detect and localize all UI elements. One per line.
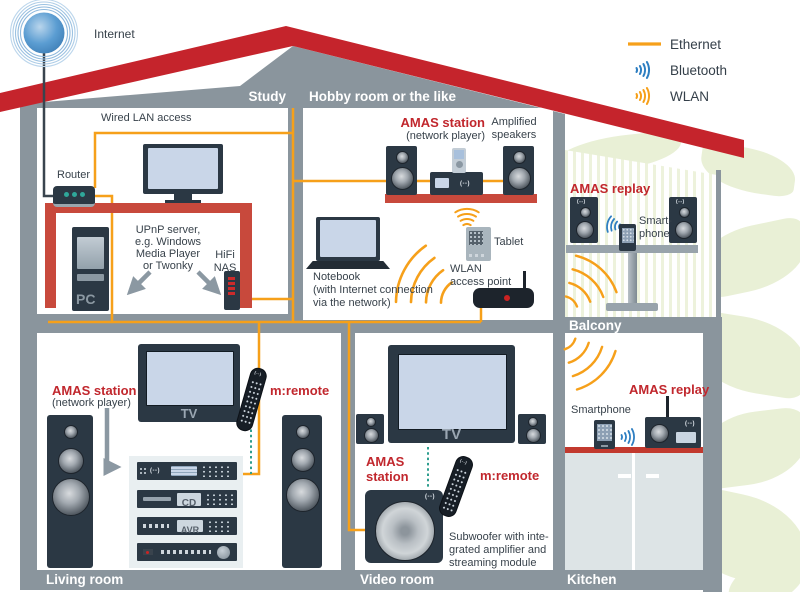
study-desk-leg	[45, 213, 56, 308]
ipod-dock	[452, 148, 466, 173]
upnp-server-label: UPnP server, e.g. Windows Media Player o…	[130, 224, 206, 272]
hifi-nas-device	[224, 271, 240, 310]
hifi-nas-label: HiFi NAS	[206, 249, 244, 275]
balcony-pillar	[716, 170, 721, 317]
kitchen-smartphone	[594, 420, 615, 449]
legend-ethernet-label: Ethernet	[670, 37, 721, 53]
rack-amplifier	[137, 543, 237, 561]
kitchen-right-wall	[703, 331, 722, 592]
hobby-shelf	[385, 194, 537, 203]
living-tv: TV	[138, 344, 240, 422]
kitchen-room	[565, 333, 703, 570]
tv-label: TV	[388, 426, 515, 443]
rack-cd-player: CD	[137, 490, 237, 508]
subwoofer-device: (--)	[365, 490, 443, 563]
pc-tower: PC	[72, 227, 109, 311]
legend-wlan-label: WLAN	[670, 89, 709, 105]
cabinet-divider	[632, 453, 635, 570]
living-mremote-title: m:remote	[270, 384, 329, 399]
pc-label: PC	[76, 291, 95, 308]
video-small-speaker	[356, 414, 384, 444]
kitchen-smartphone-label: Smartphone	[571, 404, 631, 417]
room-label-balcony: Balcony	[569, 318, 622, 334]
router-device	[53, 186, 95, 207]
tower-speaker	[282, 415, 322, 568]
notebook-label: Notebook (with Internet connection via t…	[313, 271, 433, 310]
hifi-rack: (--) CD AVR	[129, 456, 243, 568]
room-label-study: Study	[241, 89, 286, 105]
kitchen-cabinets	[565, 453, 703, 570]
amplified-speakers-label: Amplified speakers	[488, 116, 540, 142]
study-tv	[143, 144, 223, 194]
video-small-speaker	[518, 414, 546, 444]
balcony-speaker: (--)	[669, 197, 697, 243]
access-point-label: WLAN access point	[450, 263, 511, 289]
hobby-speaker	[503, 146, 534, 195]
legend-bluetooth-label: Bluetooth	[670, 63, 727, 79]
cd-display-label: CD	[182, 498, 196, 509]
video-mremote-title: m:remote	[480, 469, 539, 484]
balcony-replay-title: AMAS replay	[570, 182, 650, 197]
rack-network-player: (--)	[137, 462, 237, 480]
living-station-sub: (network player)	[52, 397, 131, 410]
room-label-video: Video room	[360, 572, 434, 588]
hobby-station-title: AMAS station	[385, 116, 485, 131]
kitchen-replay-title: AMAS replay	[629, 383, 709, 398]
hobby-speaker	[386, 146, 417, 195]
room-label-kitchen: Kitchen	[567, 572, 617, 588]
room-label-hobby: Hobby room or the like	[309, 89, 456, 105]
balcony-smartphone-label: Smart- phone	[639, 215, 672, 241]
tablet-label: Tablet	[494, 236, 523, 249]
tv-label: TV	[138, 406, 240, 421]
study-tv-base	[165, 200, 201, 203]
amas-station-player: (--)	[430, 172, 483, 195]
home-network-diagram: PC (--) (--)	[0, 0, 800, 592]
balcony-speaker: (--)	[570, 197, 598, 243]
cabinet-handle	[646, 474, 659, 478]
balcony-smartphone	[619, 224, 636, 251]
internet-label: Internet	[94, 27, 135, 41]
avr-display-label: AVR	[181, 525, 199, 535]
room-label-living: Living room	[46, 572, 123, 588]
rack-avr-receiver: AVR	[137, 517, 237, 535]
subwoofer-caption: Subwoofer with inte- grated amplifier an…	[449, 531, 549, 570]
router-label: Router	[57, 169, 90, 182]
wired-lan-label: Wired LAN access	[101, 112, 191, 125]
video-tv: TV	[388, 345, 515, 443]
tower-speaker	[47, 415, 93, 568]
hobby-station-sub: (network player)	[385, 130, 485, 143]
video-station-title: AMAS station	[366, 455, 409, 484]
tablet-device	[466, 227, 491, 261]
cabinet-handle	[618, 474, 631, 478]
